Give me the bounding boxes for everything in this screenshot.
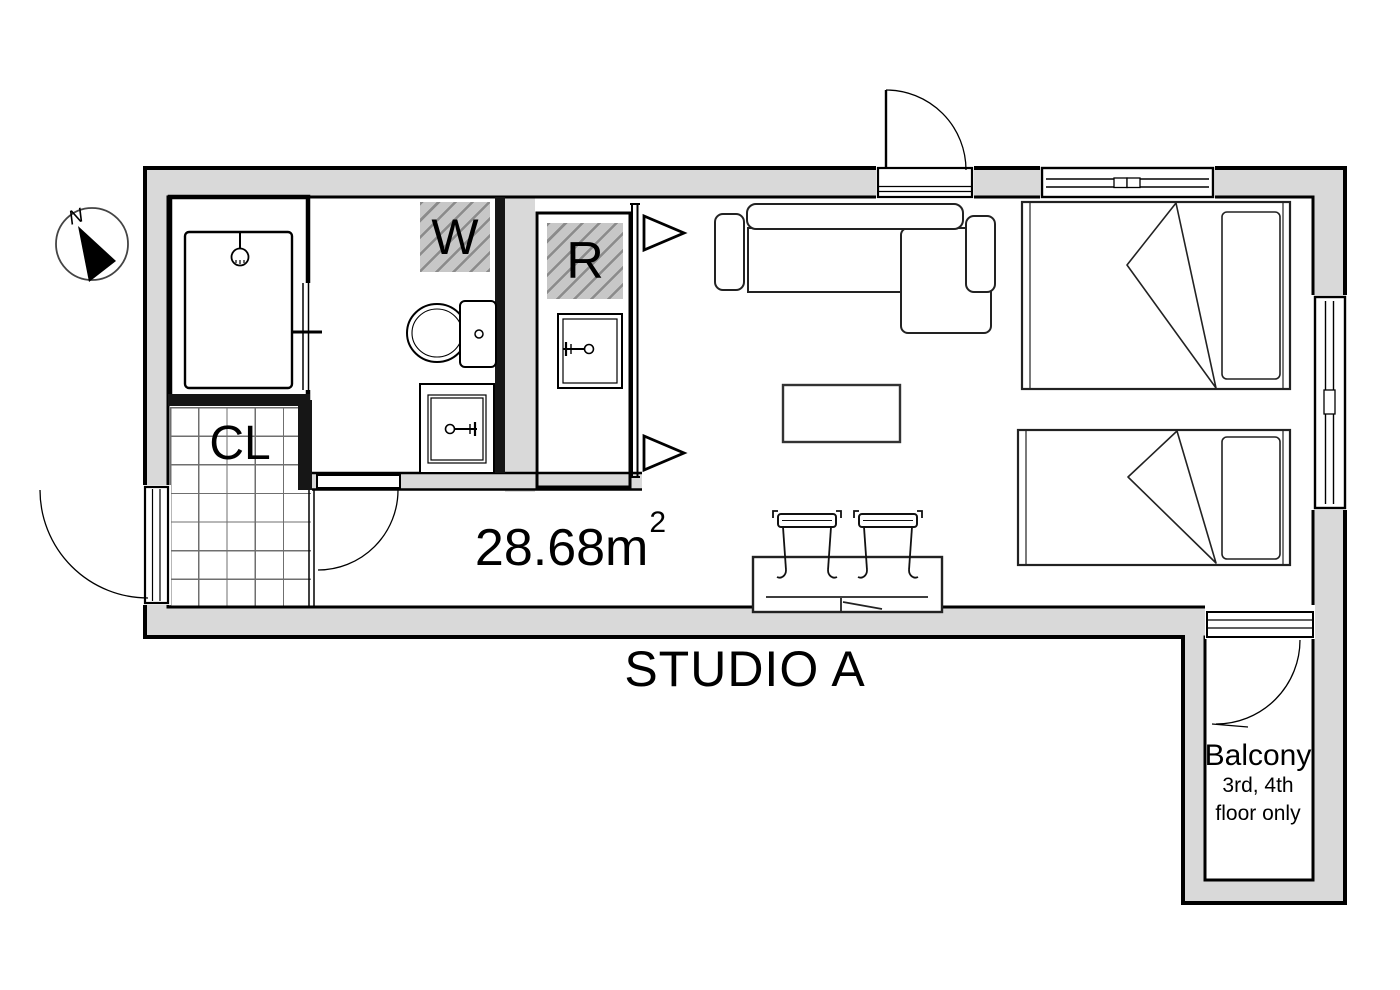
- toilet-icon: [407, 301, 496, 367]
- sofa-icon: [715, 204, 995, 333]
- unit-area-label: 28.68m2: [460, 518, 680, 578]
- balcony-name: Balcony: [1190, 739, 1326, 772]
- unit-title: STUDIO A: [590, 641, 900, 697]
- entrance-door-left: [40, 485, 171, 605]
- bed-top-icon: [1022, 202, 1290, 389]
- pillow: [1222, 437, 1280, 559]
- closet-label: CL: [170, 415, 310, 473]
- bed-bottom-icon: [1018, 430, 1290, 565]
- slide-open-arrow-bottom: [644, 436, 684, 470]
- refrigerator-label: R: [547, 223, 623, 299]
- unit-area-superscript: 2: [649, 506, 666, 540]
- bathroom: [170, 197, 322, 398]
- washer-label: W: [420, 202, 490, 272]
- kitchen-sink-icon: [558, 314, 622, 388]
- pillow: [1222, 212, 1280, 379]
- plan-linework: [0, 0, 1400, 990]
- balcony-label-block: Balcony 3rd, 4th floor only: [1190, 739, 1326, 829]
- vanity-sink-icon: [420, 384, 494, 473]
- floor-plan: N W R CL 28.68m2 STUDIO A Balcony 3rd, 4…: [0, 0, 1400, 990]
- sliding-partition: [630, 204, 684, 477]
- entrance-door-top: [876, 90, 974, 199]
- window-right: [1311, 295, 1347, 510]
- balcony-door: [1205, 605, 1315, 727]
- balcony-note-line2: floor only: [1190, 800, 1326, 828]
- coffee-table-icon: [783, 385, 900, 442]
- window-top: [1040, 164, 1215, 199]
- slide-open-arrow-top: [644, 216, 684, 250]
- balcony-note-line1: 3rd, 4th: [1190, 772, 1326, 800]
- unit-area-value: 28.68m: [475, 518, 648, 578]
- desk-icon: [753, 557, 942, 612]
